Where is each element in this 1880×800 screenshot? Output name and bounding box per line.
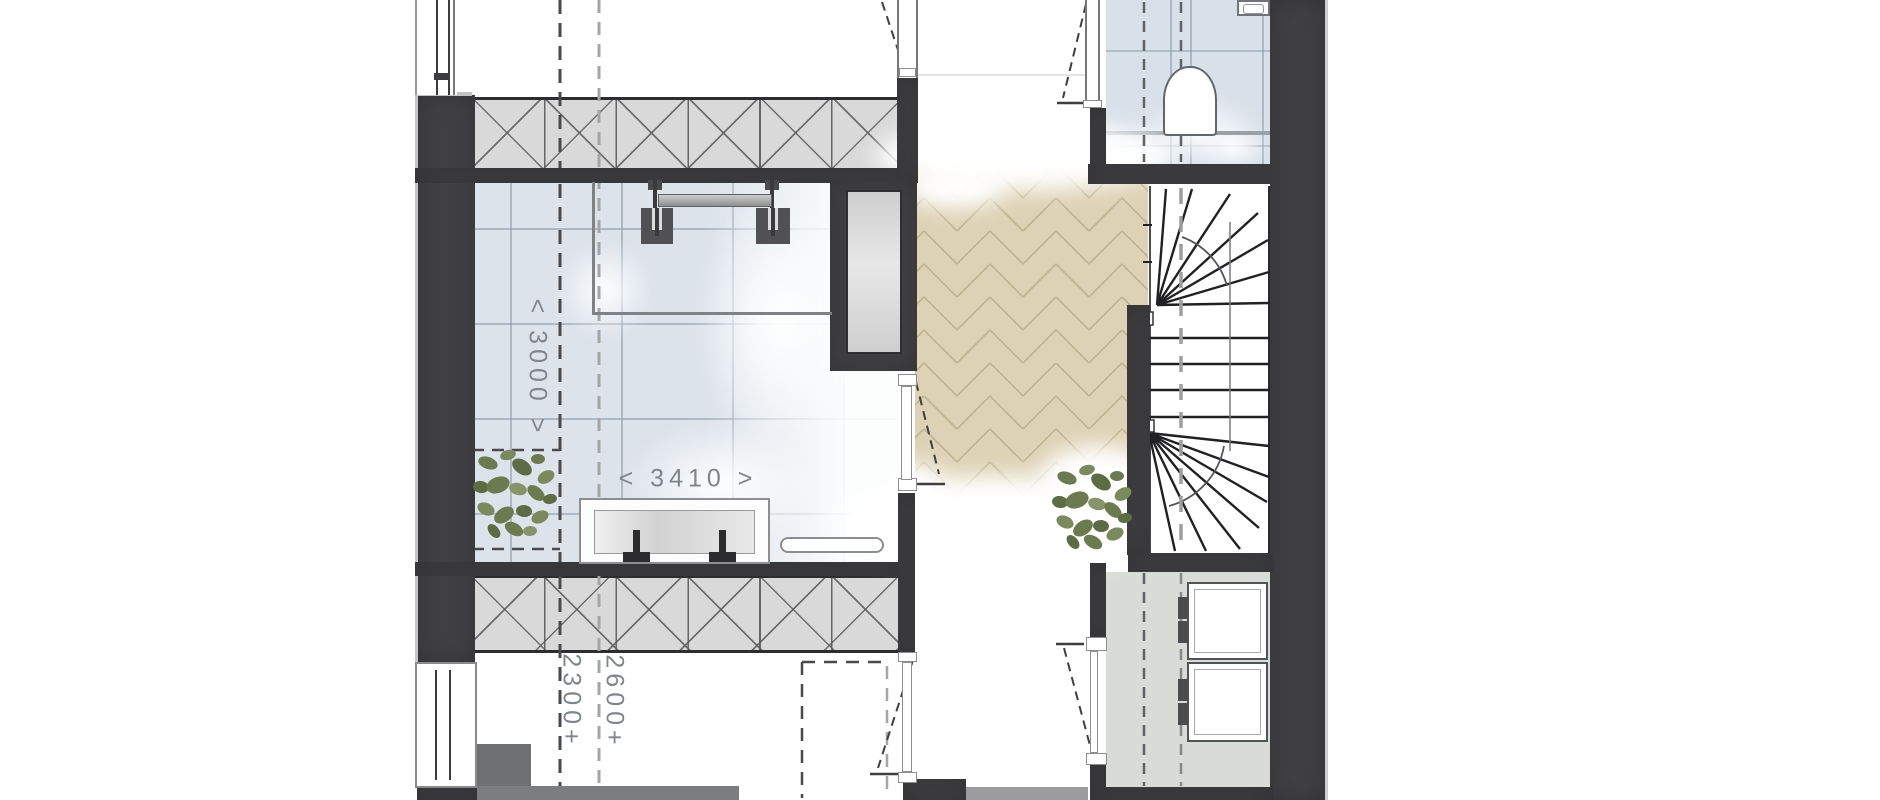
potted-plant-bedroom bbox=[472, 448, 558, 540]
dimension-ceiling-height-2: 2600+ bbox=[600, 654, 629, 749]
potted-plant-hallway bbox=[1051, 463, 1134, 552]
dimension-ceiling-height-1: 2300+ bbox=[557, 653, 586, 748]
dimension-room-width: < 3000 > bbox=[523, 299, 552, 438]
floor-plan-canvas: < 3000 > < 3410 > 2300+ 2600+ bbox=[0, 0, 1880, 800]
plants-layer bbox=[0, 0, 1880, 800]
dimension-room-length: < 3410 > bbox=[619, 465, 758, 494]
